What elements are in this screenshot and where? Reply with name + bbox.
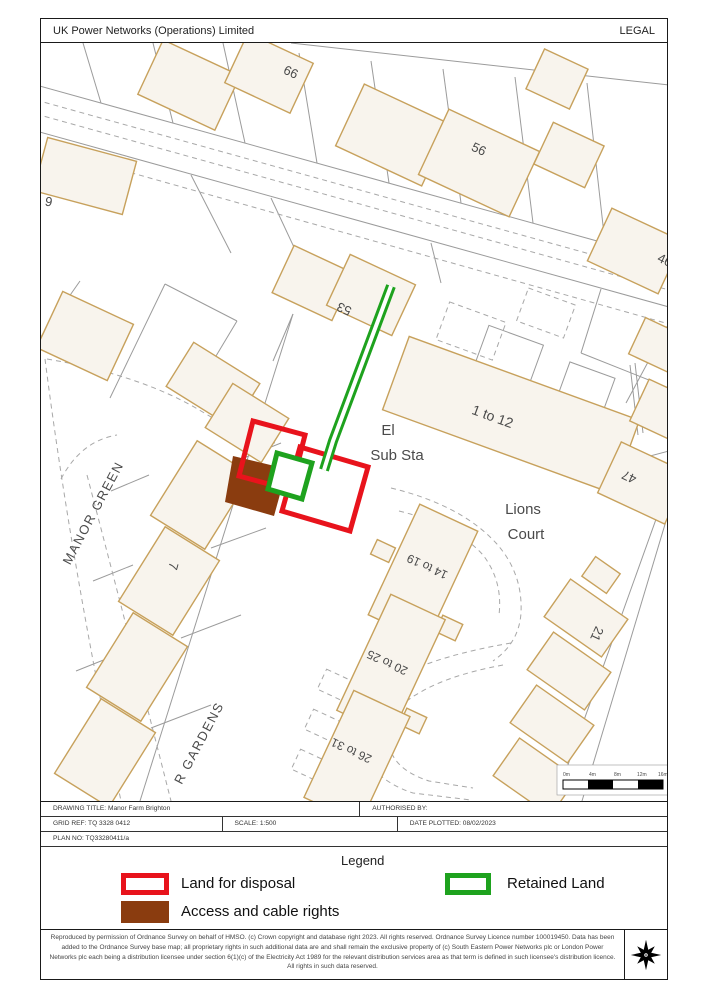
plan-document: UK Power Networks (Operations) Limited L… <box>0 0 708 1000</box>
ordnance-survey-map: 66 56 46 9 53 7 47 21 1 to 12 14 to 19 2… <box>41 43 667 801</box>
plan-frame: UK Power Networks (Operations) Limited L… <box>40 18 668 980</box>
scale-tick-2: 8m <box>614 772 621 778</box>
street-name-gardens: R GARDENS <box>171 699 227 786</box>
lions-court-label-line1: Lions <box>505 501 541 518</box>
company-title: UK Power Networks (Operations) Limited <box>53 25 254 37</box>
legend-label-retained-land: Retained Land <box>507 875 605 892</box>
legend-swatch-land-for-disposal <box>121 873 169 895</box>
legend-panel: Legend Land for disposal Retained Land A… <box>41 847 667 929</box>
scale-bar: 0m 4m 8m 12m 16m <box>557 765 667 795</box>
legend-swatch-access-cable-rights <box>121 901 169 923</box>
scale-tick-3: 12m <box>637 772 647 778</box>
el-sub-sta-label-line2: Sub Sta <box>370 447 424 464</box>
title-block-row-2: GRID REF: TQ 3328 0412 SCALE: 1:500 DATE… <box>41 817 667 832</box>
grid-ref-field: GRID REF: TQ 3328 0412 <box>41 817 223 831</box>
legend-swatch-retained-land <box>445 873 491 895</box>
title-block-row-3: PLAN NO: TQ33280411/a <box>41 832 667 847</box>
compass-rose-icon <box>630 939 662 971</box>
legend-label-land-for-disposal: Land for disposal <box>181 875 295 892</box>
el-sub-sta-label-line1: El <box>381 422 394 439</box>
scale-tick-1: 4m <box>589 772 596 778</box>
drawing-title-field: DRAWING TITLE: Manor Farm Brighton <box>41 802 360 816</box>
scale-tick-0: 0m <box>563 772 570 778</box>
legend-title: Legend <box>341 853 384 868</box>
title-block-row-1: DRAWING TITLE: Manor Farm Brighton AUTHO… <box>41 802 667 817</box>
date-plotted-field: DATE PLOTTED: 08/02/2023 <box>398 817 667 831</box>
retained-land-plot <box>268 453 312 499</box>
street-name-manor-green: MANOR GREEN <box>59 459 126 567</box>
copyright-text: Reproduced by permission of Ordnance Sur… <box>41 930 624 979</box>
scale-field: SCALE: 1:500 <box>223 817 398 831</box>
header-bar: UK Power Networks (Operations) Limited L… <box>41 19 667 43</box>
scale-tick-4: 16m <box>658 772 667 778</box>
plan-no-field: PLAN NO: TQ33280411/a <box>41 832 667 846</box>
doc-type-label: LEGAL <box>620 25 655 37</box>
title-block: DRAWING TITLE: Manor Farm Brighton AUTHO… <box>41 801 667 847</box>
house-number-9: 9 <box>44 194 54 210</box>
authorised-by-field: AUTHORISED BY: <box>360 802 667 816</box>
lions-court-label-line2: Court <box>508 526 546 543</box>
legend-label-access-cable-rights: Access and cable rights <box>181 903 339 920</box>
compass-cell <box>624 930 667 979</box>
copyright-box: Reproduced by permission of Ordnance Sur… <box>41 929 667 979</box>
map-area: 66 56 46 9 53 7 47 21 1 to 12 14 to 19 2… <box>41 43 667 801</box>
buildings <box>41 43 667 801</box>
